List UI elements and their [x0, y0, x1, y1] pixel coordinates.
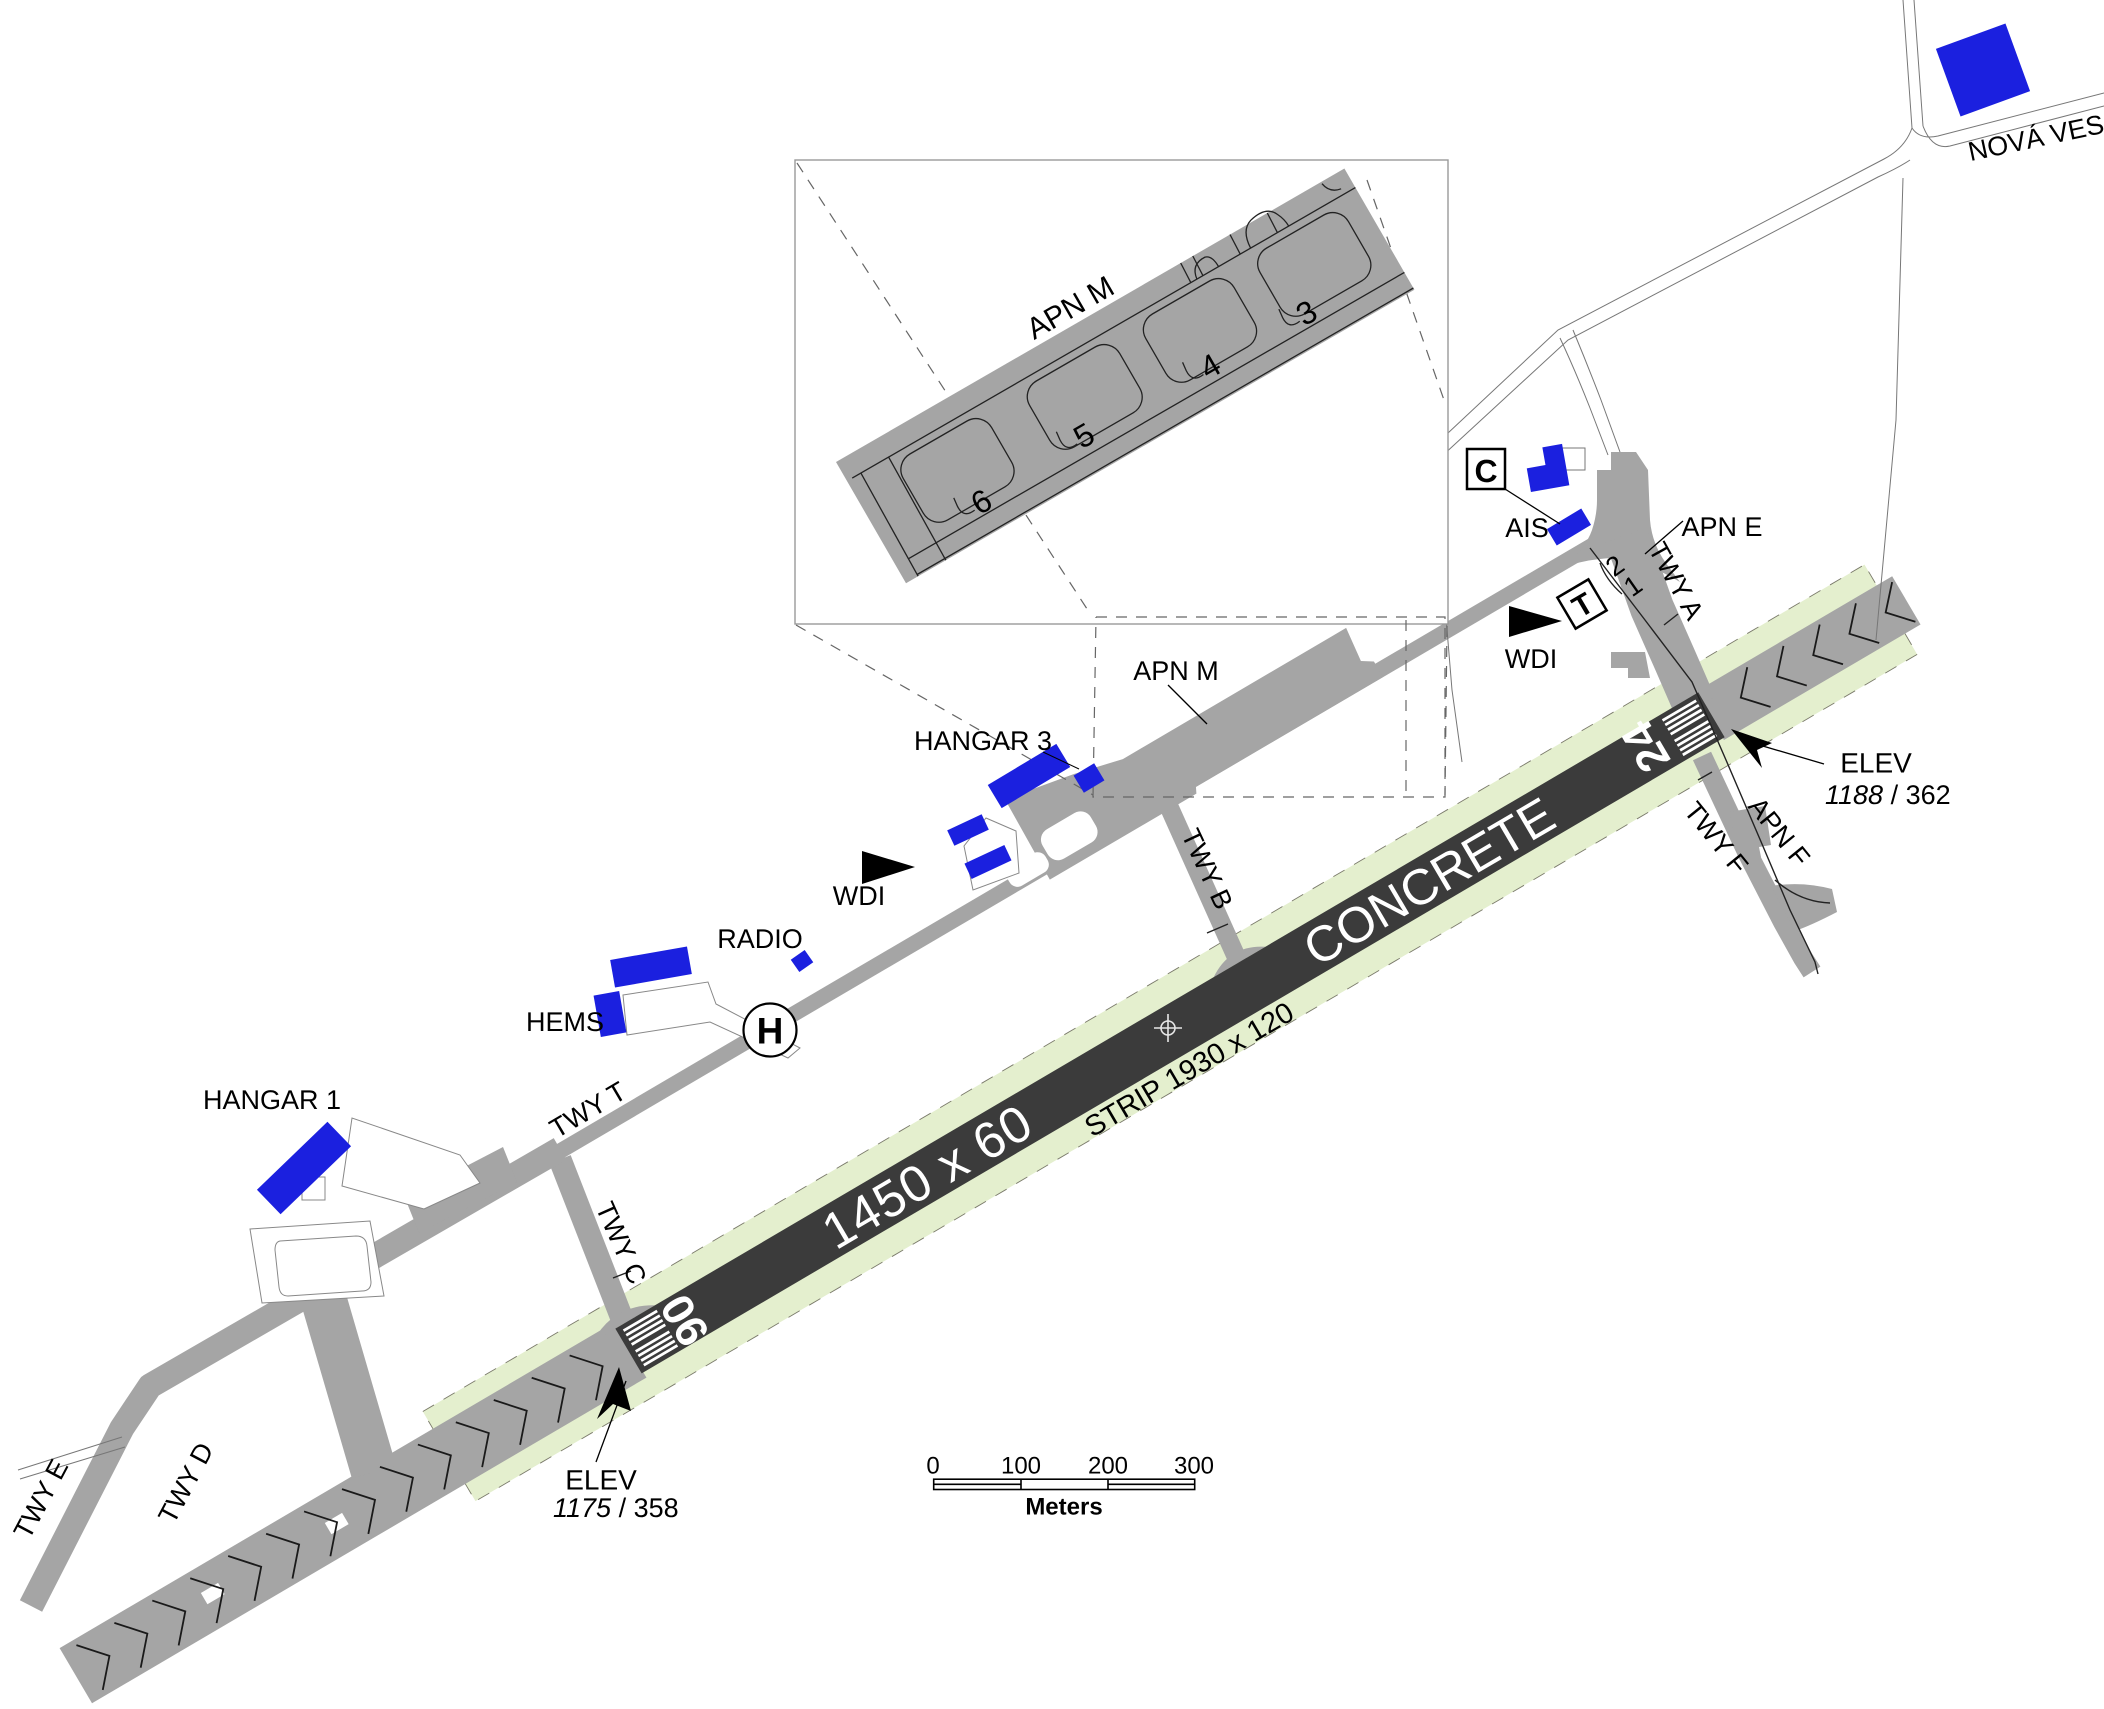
- svg-text:WDI: WDI: [1505, 644, 1557, 674]
- svg-text:ELEV: ELEV: [1840, 748, 1912, 779]
- svg-text:H: H: [757, 1011, 784, 1052]
- svg-text:ELEV: ELEV: [565, 1465, 637, 1496]
- svg-text:RADIO: RADIO: [717, 924, 803, 954]
- svg-text:HANGAR 3: HANGAR 3: [914, 726, 1052, 756]
- svg-text:C: C: [1474, 453, 1497, 489]
- svg-text:1175 / 358: 1175 / 358: [553, 1493, 679, 1523]
- svg-text:200: 200: [1088, 1453, 1128, 1480]
- svg-text:HANGAR 1: HANGAR 1: [203, 1085, 341, 1115]
- svg-text:APN M: APN M: [1133, 656, 1219, 686]
- svg-text:WDI: WDI: [833, 881, 885, 911]
- svg-text:100: 100: [1001, 1453, 1041, 1480]
- svg-text:AIS: AIS: [1505, 513, 1549, 543]
- svg-text:300: 300: [1174, 1453, 1214, 1480]
- svg-text:HEMS: HEMS: [526, 1007, 604, 1037]
- svg-text:1188 / 362: 1188 / 362: [1825, 780, 1951, 810]
- svg-text:APN E: APN E: [1681, 512, 1762, 542]
- svg-text:0: 0: [926, 1453, 939, 1480]
- svg-text:Meters: Meters: [1025, 1494, 1102, 1521]
